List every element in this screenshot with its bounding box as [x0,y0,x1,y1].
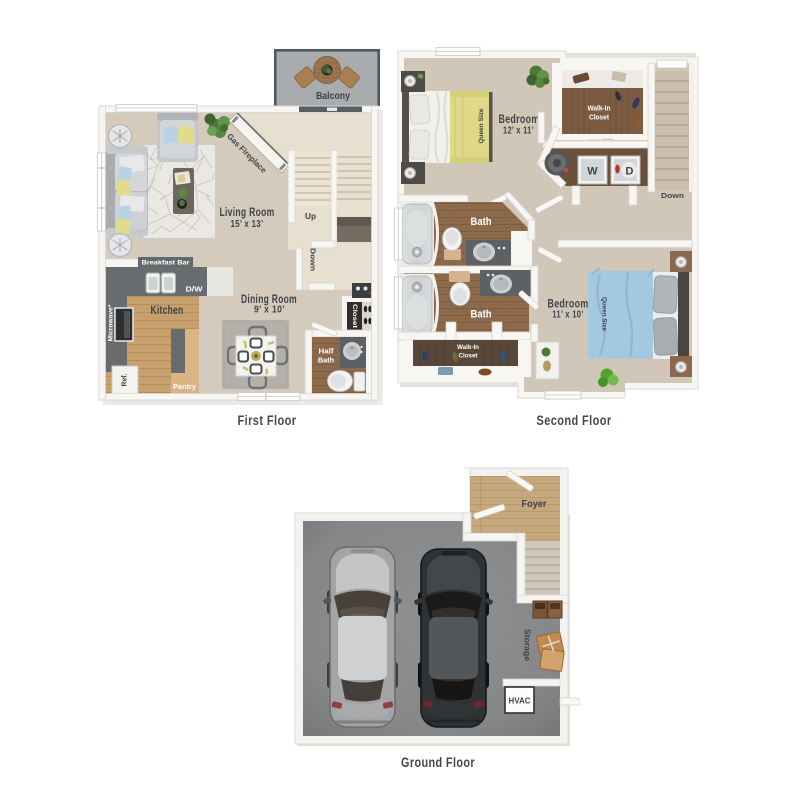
svg-text:D: D [626,166,634,178]
svg-text:Microwave*: Microwave* [109,304,115,342]
svg-text:Closet: Closet [459,353,479,360]
svg-text:Bath: Bath [318,356,334,365]
svg-text:First Floor: First Floor [238,413,297,428]
svg-text:Breakfast Bar: Breakfast Bar [142,260,190,267]
svg-text:W: W [587,166,598,178]
svg-text:Second Floor: Second Floor [537,413,612,428]
svg-text:Half: Half [319,347,335,356]
svg-text:Closet: Closet [589,113,610,122]
svg-text:Down: Down [661,191,684,200]
svg-text:HVAC: HVAC [509,697,531,706]
svg-text:15’ x 13’: 15’ x 13’ [231,218,264,230]
svg-text:Ground Floor: Ground Floor [401,755,475,770]
svg-text:9’ x 10’: 9’ x 10’ [254,304,285,316]
svg-text:Storage: Storage [523,629,533,661]
svg-text:12’ x 11’: 12’ x 11’ [503,125,534,137]
svg-text:Walk-In: Walk-In [588,104,611,113]
svg-text:Kitchen: Kitchen [151,305,184,317]
svg-text:Foyer: Foyer [522,499,547,510]
svg-text:Bath: Bath [471,309,492,321]
svg-text:Down: Down [309,248,318,271]
svg-text:D/W: D/W [186,285,203,294]
svg-text:Pantry: Pantry [173,382,197,391]
svg-text:Queen Size: Queen Size [601,297,608,331]
svg-text:Up: Up [305,212,316,221]
svg-text:Bath: Bath [471,216,492,228]
svg-text:Ref.: Ref. [122,373,129,386]
svg-text:Walk-In: Walk-In [457,344,479,351]
svg-text:Queen Size: Queen Size [478,108,485,144]
svg-text:11’ x 10’: 11’ x 10’ [552,309,584,321]
svg-text:Closet: Closet [351,304,358,329]
svg-text:Balcony: Balcony [316,91,350,102]
